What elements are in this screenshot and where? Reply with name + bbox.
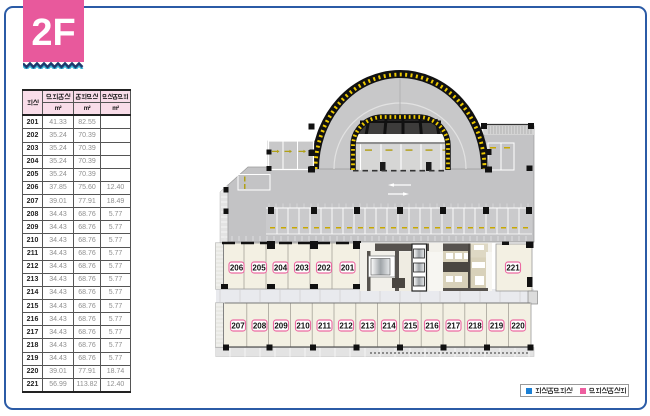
svg-text:202: 202: [317, 264, 331, 273]
svg-text:203: 203: [295, 264, 309, 273]
svg-text:209: 209: [274, 322, 288, 331]
svg-text:207: 207: [231, 322, 245, 331]
svg-text:204: 204: [274, 264, 288, 273]
svg-text:214: 214: [382, 322, 396, 331]
svg-text:208: 208: [253, 322, 267, 331]
svg-text:213: 213: [361, 322, 375, 331]
svg-text:220: 220: [511, 322, 525, 331]
svg-text:210: 210: [296, 322, 310, 331]
svg-text:218: 218: [468, 322, 482, 331]
svg-text:201: 201: [341, 264, 355, 273]
svg-text:211: 211: [318, 322, 331, 331]
svg-text:221: 221: [506, 264, 520, 273]
svg-text:216: 216: [425, 322, 439, 331]
svg-text:212: 212: [339, 322, 353, 331]
svg-text:215: 215: [404, 322, 418, 331]
svg-text:205: 205: [252, 264, 266, 273]
svg-text:206: 206: [230, 264, 244, 273]
svg-text:217: 217: [447, 322, 461, 331]
svg-text:219: 219: [490, 322, 504, 331]
